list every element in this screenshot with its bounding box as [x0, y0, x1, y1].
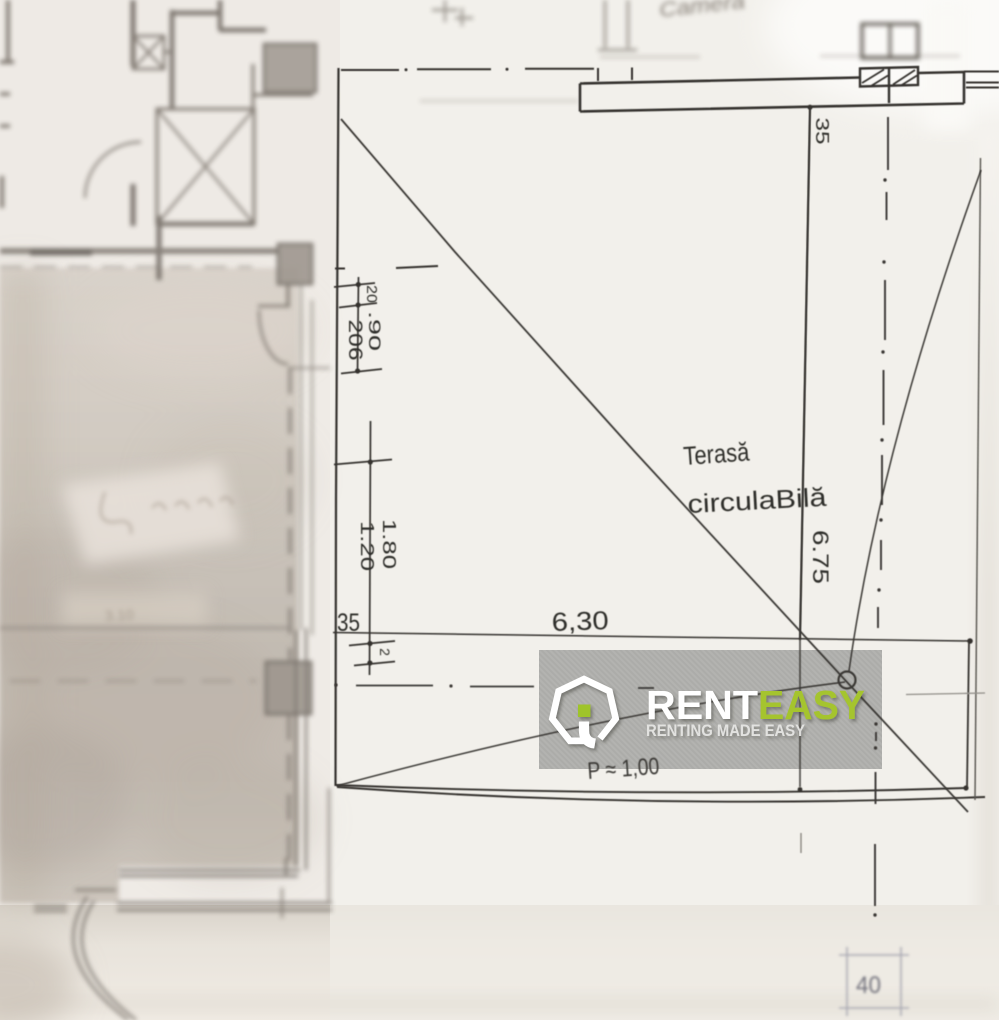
svg-text:35: 35 — [337, 609, 360, 637]
svg-text:35: 35 — [812, 118, 832, 145]
svg-text:6.75: 6.75 — [808, 530, 833, 584]
svg-text:1.20: 1.20 — [357, 521, 377, 571]
svg-text:3.10: 3.10 — [104, 606, 134, 625]
svg-text:2: 2 — [377, 648, 393, 656]
svg-text:6,30: 6,30 — [551, 605, 609, 637]
svg-text:206: 206 — [344, 320, 365, 361]
svg-text:P ≈ 1,00: P ≈ 1,00 — [587, 753, 661, 785]
svg-text:.90: .90 — [365, 311, 384, 351]
svg-text:RENTING MADE EASY: RENTING MADE EASY — [646, 722, 805, 740]
svg-text:40: 40 — [856, 972, 881, 999]
svg-text:1.80: 1.80 — [379, 519, 399, 569]
svg-text:20: 20 — [363, 285, 380, 303]
svg-text:Terasă: Terasă — [682, 436, 750, 471]
